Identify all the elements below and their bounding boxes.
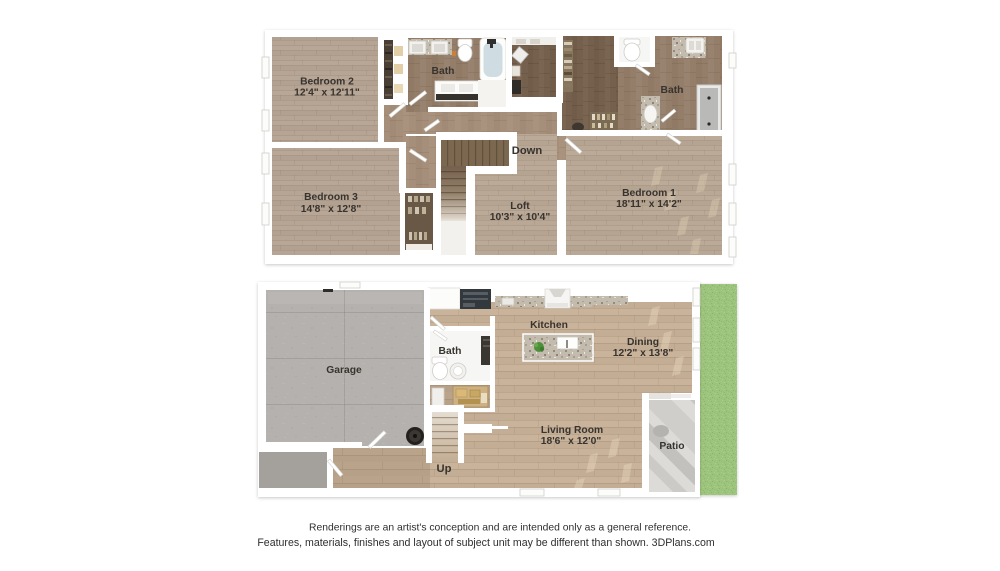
svg-text:Living Room: Living Room — [541, 425, 603, 436]
svg-text:Bath: Bath — [439, 346, 462, 357]
svg-text:Bedroom 3: Bedroom 3 — [304, 192, 358, 203]
svg-text:Garage: Garage — [326, 365, 362, 376]
svg-text:Bedroom 2: Bedroom 2 — [300, 77, 354, 88]
svg-text:Loft: Loft — [510, 201, 530, 212]
svg-text:Bedroom 1: Bedroom 1 — [622, 188, 676, 199]
svg-text:Bath: Bath — [432, 66, 455, 77]
svg-text:Patio: Patio — [659, 441, 684, 452]
svg-text:12'2" x 13'8": 12'2" x 13'8" — [613, 348, 674, 359]
svg-text:Down: Down — [512, 145, 543, 157]
svg-text:Dining: Dining — [627, 337, 659, 348]
svg-text:Features, materials, finishes: Features, materials, finishes and layout… — [257, 537, 715, 549]
svg-text:10'3" x 10'4": 10'3" x 10'4" — [490, 212, 551, 223]
svg-text:Kitchen: Kitchen — [530, 320, 568, 331]
svg-text:18'6" x 12'0": 18'6" x 12'0" — [541, 436, 602, 447]
svg-text:Up: Up — [437, 463, 452, 475]
svg-text:12'4" x 12'11": 12'4" x 12'11" — [294, 88, 360, 99]
svg-text:Bath: Bath — [661, 85, 684, 96]
svg-text:18'11" x 14'2": 18'11" x 14'2" — [616, 199, 682, 210]
svg-text:14'8" x 12'8": 14'8" x 12'8" — [301, 204, 362, 215]
svg-text:Renderings are an artist's con: Renderings are an artist's conception an… — [309, 523, 691, 534]
